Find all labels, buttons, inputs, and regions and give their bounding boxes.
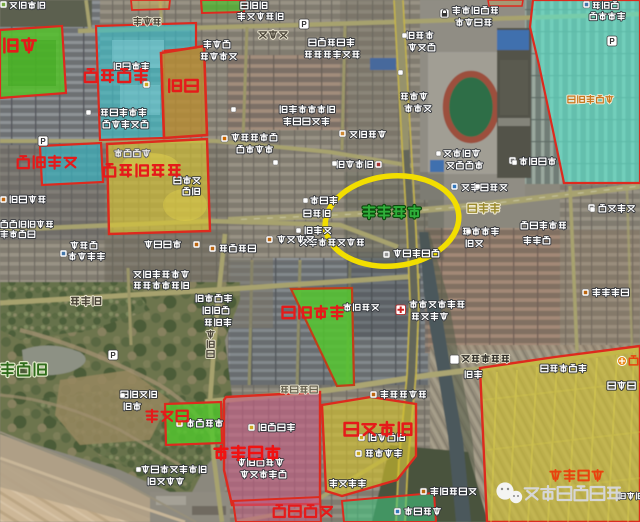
svg-text:P: P	[110, 351, 116, 360]
svg-text:P: P	[301, 20, 307, 29]
svg-text:P: P	[609, 37, 615, 46]
svg-text:P: P	[40, 137, 46, 146]
